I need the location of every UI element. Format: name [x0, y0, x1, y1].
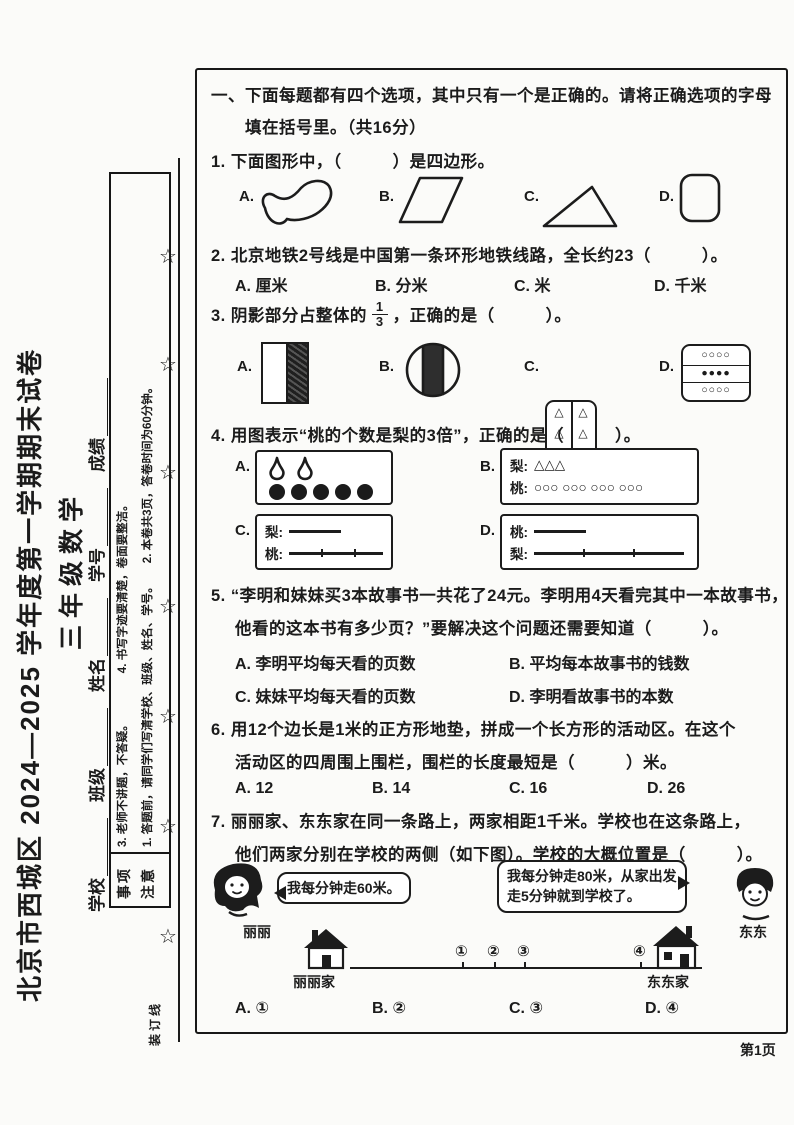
girl-speech-text: 我每分钟走60米。	[287, 880, 401, 896]
field-school-blank	[92, 818, 108, 876]
q1-text: 1. 下面图形中，（ ）是四边形。	[211, 148, 495, 172]
q7-option-c: C. ③	[509, 998, 543, 1018]
q7-option-b: B. ②	[372, 998, 406, 1018]
road-tick-2	[494, 962, 496, 969]
q2-option-d: D. 千米	[654, 272, 706, 296]
boy-speech-line2: 走5分钟就到学校了。	[507, 886, 677, 906]
q2-text: 2. 北京地铁2号线是中国第一条环形地铁线路，全长约23（ ）。	[211, 242, 728, 266]
triangle-glyph: △	[578, 406, 587, 418]
pear-symbols: △△△	[534, 457, 565, 473]
field-class: 班级	[83, 708, 108, 802]
left-house-icon	[302, 926, 350, 970]
boy-speech-line1: 我每分钟走80米，从家出发	[507, 866, 677, 886]
pear-row-label: 梨:	[510, 455, 528, 475]
q5-option-b: B. 平均每本故事书的钱数	[509, 650, 689, 674]
q3-figure-d-dot-grid: ○○○○ ●●●● ○○○○	[681, 344, 751, 402]
section-header-line2: 填在括号里。（共16分）	[245, 114, 426, 138]
q3-figure-a-shaded-part	[286, 344, 307, 402]
q3-label-c: C.	[524, 358, 539, 375]
q1-label-c: C.	[524, 188, 539, 205]
short-bar	[534, 530, 586, 533]
q1-shape-a-irregular-blob	[257, 172, 335, 234]
boy-character	[731, 864, 779, 924]
q7-text-line1: 7. 丽丽家、东东家在同一条路上，两家相距1千米。学校也在这条路上，	[211, 808, 751, 832]
q3-label-d: D.	[659, 358, 674, 375]
q1-label-a: A.	[239, 188, 254, 205]
road-point-3: ③	[517, 942, 530, 960]
q3-text-post: ，正确的是（ ）。	[393, 302, 572, 326]
q6-text-line2: 活动区的四周围上围栏，围栏的长度最短是（ ）米。	[235, 749, 677, 773]
page-number: 第1页	[740, 1040, 776, 1060]
student-info-fields: 学校 班级 姓名 学号 成绩	[84, 287, 108, 912]
q3-figure-d-row2: ●●●●	[683, 365, 749, 379]
notice-gap	[139, 563, 162, 581]
girl-speech-bubble: 我每分钟走60米。	[277, 872, 411, 904]
field-score-blank	[92, 378, 108, 436]
star-icon: ☆	[159, 594, 177, 619]
field-school: 学校	[83, 818, 108, 912]
q3-label-a: A.	[237, 358, 252, 375]
star-icon: ☆	[159, 460, 177, 485]
q4-label-b: B.	[480, 458, 495, 475]
q4-figure-b-symbol-box: 梨:△△△ 桃:○○○ ○○○ ○○○ ○○○	[500, 448, 699, 505]
q5-option-c: C. 妹妹平均每天看的页数	[235, 683, 415, 707]
peach-row-label: 桃:	[510, 521, 528, 541]
q3-figure-d-row1: ○○○○	[683, 350, 749, 361]
boy-speech-bubble: 我每分钟走80米，从家出发 走5分钟就到学校了。	[497, 860, 687, 913]
notice-item-4: 4. 书写字迹要清楚，卷面要整洁。	[114, 499, 137, 673]
notice-line-1: 1. 答题前，请同学们写清学校、班级、姓名、学号。 2. 本卷共3页，答卷时间为…	[139, 192, 162, 847]
q4-figure-c-bar-box: 梨: 桃:	[255, 514, 393, 570]
field-name-blank	[92, 598, 108, 656]
question-area: 一、下面每题都有四个选项，其中只有一个是正确的。请将正确选项的字母 填在括号里。…	[195, 68, 788, 1034]
peach-symbols: ○○○ ○○○ ○○○ ○○○	[534, 480, 643, 495]
notice-label-divider	[109, 852, 171, 854]
field-student-id-label: 学号	[83, 548, 108, 582]
peach-row-label: 桃:	[510, 477, 528, 497]
q5-text-line1: 5. “李明和妹妹买3本故事书一共花了24元。李明用4天看完其中一本故事书，	[211, 582, 788, 606]
binding-line-label: 装订线	[146, 990, 161, 1046]
q7-figure: 丽丽 我每分钟走60米。 我每分钟走80米，从家出发 走5分钟就到学校了。 东东…	[197, 860, 786, 995]
q4-figure-a-pears-and-peaches	[265, 456, 387, 501]
q2-option-b: B. 分米	[375, 272, 427, 296]
notice-line-2: 3. 老师不讲题，不答疑。 4. 书写字迹要清楚，卷面要整洁。	[114, 192, 137, 847]
star-icon: ☆	[159, 924, 177, 949]
triangle-glyph: △	[554, 406, 563, 418]
q3-text: 3. 阴影部分占整体的 1 3 ，正确的是（ ）。	[211, 300, 571, 328]
notice-gap	[114, 673, 137, 719]
road-line	[350, 967, 702, 969]
q5-option-d: D. 李明看故事书的本数	[509, 683, 673, 707]
q3-label-b: B.	[379, 358, 394, 375]
star-icon: ☆	[159, 352, 177, 377]
short-bar	[289, 530, 341, 533]
q4-text: 4. 用图表示“桃的个数是梨的3倍”，正确的是（ ）。	[211, 422, 641, 446]
star-icon: ☆	[159, 244, 177, 269]
q3-figure-d-row3: ○○○○	[683, 382, 749, 396]
q6-option-d: D. 26	[647, 780, 685, 798]
left-house-label: 丽丽家	[293, 972, 335, 992]
q4-label-d: D.	[480, 522, 495, 539]
q6-option-c: C. 16	[509, 780, 547, 798]
road-tick-3	[524, 962, 526, 969]
right-house-label: 东东家	[647, 972, 689, 992]
q6-option-a: A. 12	[235, 780, 273, 798]
exam-subtitle: 三年级数学	[52, 440, 82, 650]
notice-label-line2: 事项	[114, 855, 134, 899]
q3-figure-a-rect-shaded	[261, 342, 309, 404]
q7-option-d: D. ④	[645, 998, 679, 1018]
road-point-4: ④	[633, 942, 646, 960]
q3-figure-b-circle-shaded	[403, 340, 463, 400]
field-class-blank	[92, 708, 108, 766]
long-bar	[289, 552, 383, 555]
q1-shape-d-rounded-square	[678, 172, 722, 224]
road-tick-4	[640, 962, 642, 969]
field-school-label: 学校	[83, 878, 108, 912]
road-point-2: ②	[487, 942, 500, 960]
field-class-label: 班级	[83, 768, 108, 802]
q4-label-a: A.	[235, 458, 250, 475]
q6-text-line1: 6. 用12个边长是1米的正方形地垫，拼成一个长方形的活动区。在这个	[211, 716, 736, 740]
field-score: 成绩	[83, 378, 108, 472]
section-header-line1: 一、下面每题都有四个选项，其中只有一个是正确的。请将正确选项的字母	[211, 82, 772, 106]
binding-line	[178, 158, 180, 1042]
q5-text-line2: 他看的这本书有多少页？”要解决这个问题还需要知道（ ）。	[235, 615, 729, 639]
field-student-id-blank	[92, 488, 108, 546]
pear-row-label: 梨:	[510, 543, 528, 563]
field-name: 姓名	[83, 598, 108, 692]
q1-shape-b-parallelogram	[397, 174, 465, 226]
boy-name-label: 东东	[739, 922, 767, 942]
q3-fraction-denominator: 3	[376, 315, 384, 329]
q4-figure-a-fruit-box	[255, 450, 393, 505]
girl-character	[209, 860, 267, 924]
right-house-icon	[650, 922, 702, 970]
q6-option-b: B. 14	[372, 780, 410, 798]
star-icon: ☆	[159, 704, 177, 729]
q1-shape-c-triangle	[541, 182, 619, 230]
road-tick-1	[462, 962, 464, 969]
q4-figure-d-bar-box: 桃: 梨:	[500, 514, 699, 570]
q2-option-c: C. 米	[514, 272, 550, 296]
long-bar	[534, 552, 684, 555]
q4-label-c: C.	[235, 522, 250, 539]
road-point-1: ①	[455, 942, 468, 960]
notice-label-line1: 注意	[138, 855, 158, 899]
pear-row-label: 梨:	[265, 521, 283, 541]
field-student-id: 学号	[83, 488, 108, 582]
q2-option-a: A. 厘米	[235, 272, 287, 296]
q5-option-a: A. 李明平均每天看的页数	[235, 650, 415, 674]
q3-fraction-numerator: 1	[372, 300, 388, 315]
star-icon: ☆	[159, 814, 177, 839]
field-name-label: 姓名	[83, 658, 108, 692]
girl-name-label: 丽丽	[243, 922, 271, 942]
q3-fraction: 1 3	[372, 300, 388, 328]
peach-row-label: 桃:	[265, 543, 283, 563]
q3-text-pre: 3. 阴影部分占整体的	[211, 302, 367, 326]
q1-label-b: B.	[379, 188, 394, 205]
q1-label-d: D.	[659, 188, 674, 205]
field-score-label: 成绩	[83, 438, 108, 472]
notice-item-3: 3. 老师不讲题，不答疑。	[114, 719, 137, 847]
q7-option-a: A. ①	[235, 998, 269, 1018]
exam-title: 北京市西城区 2024—2025 学年度第一学期期末试卷	[10, 262, 46, 1002]
